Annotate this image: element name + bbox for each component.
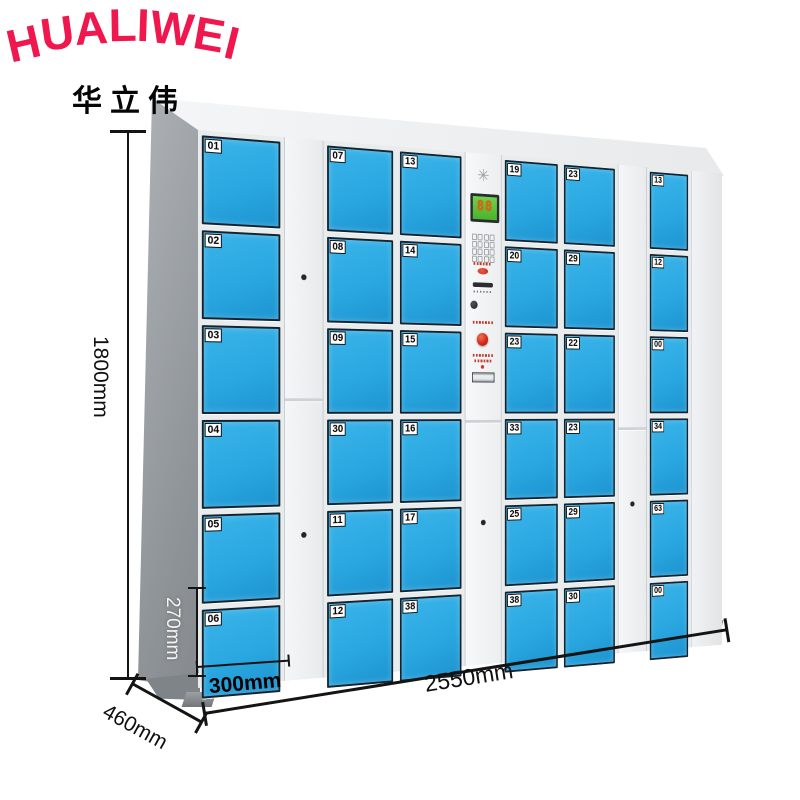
keypad-key (478, 249, 483, 255)
locker-door: 23 (564, 419, 615, 499)
locker-column: 131415161738 (397, 146, 465, 671)
door-number: 23 (507, 335, 521, 348)
door-number: 38 (402, 600, 417, 614)
keyhole-icon (481, 520, 486, 526)
door-number: 30 (566, 590, 580, 603)
door-number: 23 (566, 421, 580, 434)
logo-letter: U (38, 8, 76, 58)
locker-door: 08 (327, 237, 393, 324)
door-number: 06 (205, 612, 222, 627)
door-number: 29 (566, 506, 580, 519)
locker-door: 12 (650, 254, 688, 332)
door-number: 29 (566, 252, 580, 265)
indicator-dot (481, 365, 484, 369)
start-button (477, 333, 488, 346)
locker-door: 07 (327, 145, 393, 234)
keypad-key (484, 234, 489, 240)
locker-door: 09 (327, 328, 393, 414)
door-number: 30 (330, 422, 346, 436)
door-number: 20 (507, 249, 521, 262)
keyhole-icon (301, 532, 306, 538)
keypad-key (472, 256, 477, 262)
door-number: 22 (566, 337, 580, 350)
door-number: 01 (205, 139, 222, 154)
keypad-key (478, 241, 483, 247)
locker-door: 33 (505, 419, 558, 500)
keypad (472, 234, 495, 263)
door-number: 25 (507, 508, 521, 521)
keypad-key (472, 241, 477, 247)
card-slot (473, 282, 493, 287)
locker-column: 010203040506 (198, 130, 284, 688)
keyhole-icon (630, 501, 634, 506)
dimension-label-door-height: 270mm (161, 597, 183, 660)
door-number: 19 (507, 163, 521, 177)
label-text (474, 359, 491, 362)
door-number: 23 (566, 168, 580, 182)
dimension-line-height (127, 132, 129, 678)
strip-divider (285, 398, 323, 401)
locker-door: 22 (564, 334, 615, 413)
indicator-text (474, 262, 492, 266)
door-number: 13 (402, 154, 417, 168)
keypad-key (490, 249, 495, 255)
dimension-label-height: 1800mm (88, 336, 112, 418)
door-number: 05 (205, 517, 222, 532)
door-number: 33 (507, 422, 521, 435)
cabinet-end-panel (691, 171, 722, 648)
door-number: 15 (402, 333, 417, 346)
locker-door: 29 (564, 502, 615, 583)
locker-door: 00 (650, 581, 688, 660)
keypad-key (478, 234, 483, 240)
locker-door: 13 (400, 151, 462, 238)
door-number: 12 (652, 257, 664, 269)
door-number: 00 (652, 585, 664, 597)
keypad-key (472, 248, 477, 254)
locker-door: 30 (327, 419, 393, 505)
panel-divider (466, 420, 501, 423)
lock-strip (284, 137, 324, 681)
locker-column: 192023332538 (502, 155, 561, 663)
door-number: 09 (330, 331, 346, 345)
locker-door: 19 (505, 160, 558, 244)
slot-dots (474, 291, 493, 294)
locker-door: 12 (327, 598, 393, 688)
locker-door: 14 (400, 241, 462, 326)
keypad-key (478, 256, 483, 262)
lock-strip (618, 165, 647, 654)
door-number: 17 (402, 511, 417, 525)
starburst-icon: ✳ (466, 165, 501, 187)
door-number: 03 (205, 328, 222, 342)
locker-door: 05 (202, 512, 280, 603)
logo-letter: A (73, 4, 108, 52)
instruction-plate (472, 372, 495, 382)
keypad-key (484, 249, 489, 255)
locker-column: 070809301112 (324, 140, 397, 677)
label-text (473, 321, 493, 324)
locker-door: 23 (564, 165, 615, 247)
indicator-light (478, 268, 488, 275)
door-number: 11 (330, 513, 346, 527)
door-number: 00 (652, 339, 664, 350)
locker-door: 02 (202, 230, 280, 321)
door-number: 38 (507, 593, 521, 607)
logo-letter: L (108, 2, 136, 48)
logo-letter: I (136, 2, 149, 48)
keyhole-icon (301, 274, 306, 280)
locker-door: 23 (505, 333, 558, 414)
locker-door: 11 (327, 509, 393, 597)
locker-door: 20 (505, 246, 558, 328)
locker-door: 16 (400, 419, 462, 503)
control-panel-column: ✳ 88 (465, 152, 502, 666)
door-number: 08 (330, 240, 346, 254)
door-number: 07 (330, 149, 346, 164)
logo-letter: W (148, 3, 195, 53)
locker-door: 04 (202, 420, 280, 509)
locker-door: 63 (650, 500, 688, 578)
locker-door: 15 (400, 330, 462, 414)
dimension-label-depth: 460mm (98, 700, 171, 755)
label-text (473, 354, 493, 357)
strip-divider (619, 427, 647, 430)
door-number: 34 (652, 421, 664, 432)
locker-door: 01 (202, 135, 280, 228)
locker-door: 17 (400, 507, 462, 593)
locker-door: 13 (650, 172, 688, 251)
door-number: 13 (652, 174, 664, 186)
locker-door: 34 (650, 418, 688, 495)
scanner-lens (470, 301, 477, 310)
logo-letter: H (2, 18, 44, 70)
keypad-key (490, 235, 495, 241)
door-number: 04 (205, 423, 222, 437)
door-number: 16 (402, 422, 417, 435)
keypad-key (490, 242, 495, 248)
keypad-key (472, 234, 477, 240)
cabinet-front-face: 010203040506070809301112131415161738 ✳ 8… (198, 130, 717, 688)
locker-column: 232922232930 (561, 160, 618, 658)
door-number: 02 (205, 233, 222, 248)
locker-column: 131200346300 (647, 167, 691, 651)
keypad-key (484, 256, 489, 262)
dimension-label-door-width: 300mm (208, 669, 282, 699)
led-display: 88 (470, 193, 499, 223)
locker-door: 25 (505, 504, 558, 587)
door-number: 14 (402, 244, 417, 258)
brand-chinese-name: 华立伟 (72, 76, 186, 120)
door-number: 12 (330, 604, 346, 618)
door-number: 63 (652, 503, 664, 515)
locker-door: 29 (564, 249, 615, 330)
brand-logo: HUALIWEI (12, 4, 231, 50)
keypad-key (484, 241, 489, 247)
locker-door: 00 (650, 336, 688, 413)
locker-door: 03 (202, 325, 280, 414)
keypad-key (490, 256, 495, 262)
